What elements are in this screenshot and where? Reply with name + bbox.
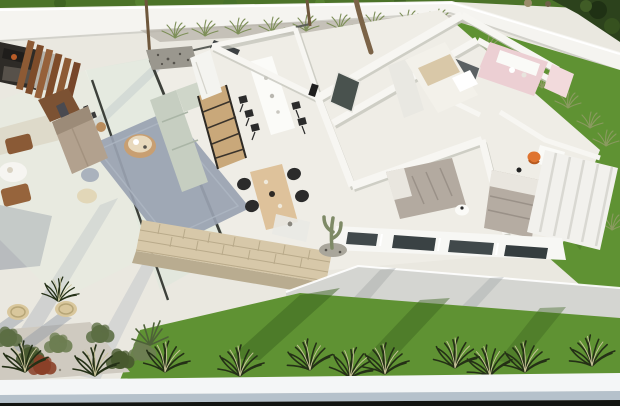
pouf-gray — [81, 168, 99, 182]
lounge-orange-cushion — [11, 54, 17, 60]
side-table — [96, 122, 106, 132]
nightstand-round — [455, 205, 469, 216]
table-vase — [269, 191, 275, 197]
coffee-table-top — [128, 136, 152, 153]
pouf-cream — [77, 189, 97, 204]
floorplan-render — [0, 0, 620, 406]
floor-lamp — [517, 168, 522, 173]
outdoor-table — [0, 162, 27, 182]
render-canvas — [0, 0, 620, 406]
